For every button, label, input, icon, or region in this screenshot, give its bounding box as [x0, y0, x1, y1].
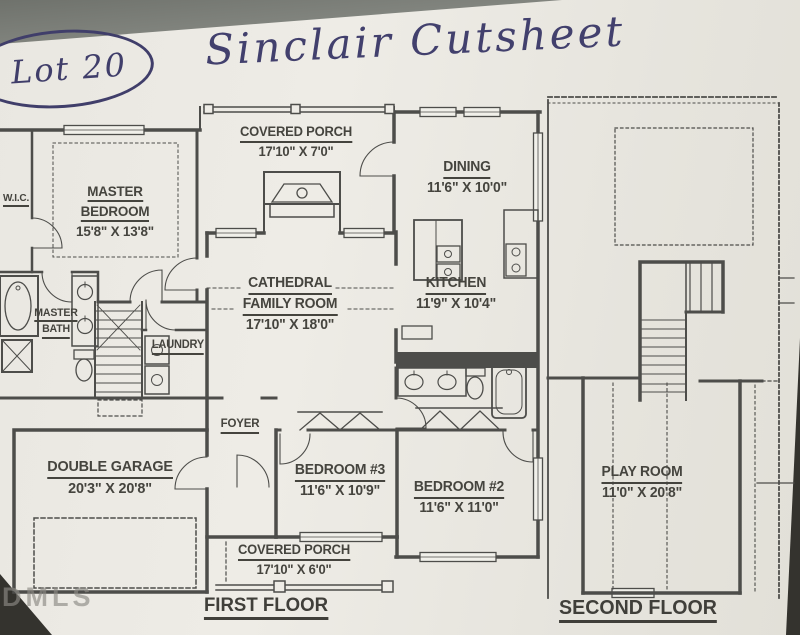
- watermark-text: DMLS: [2, 582, 95, 613]
- room-label-garage: DOUBLE GARAGE 20'3" X 20'8": [47, 457, 173, 498]
- room-dims: 11'6" X 11'0": [419, 499, 498, 518]
- room-name: COVERED PORCH: [238, 541, 350, 561]
- room-dims: 11'9" X 10'4": [416, 295, 496, 314]
- room-label-kitchen: KITCHEN 11'9" X 10'4": [416, 274, 496, 314]
- room-dims: 11'6" X 10'0": [427, 179, 507, 198]
- room-dims: 15'8" X 13'8": [76, 222, 154, 240]
- first-floor-title: FIRST FLOOR: [204, 595, 328, 617]
- room-name: FAMILY ROOM: [243, 295, 338, 316]
- room-dims: 11'6" X 10'9": [300, 482, 380, 501]
- first-floor-title-text: FIRST FLOOR: [204, 595, 328, 620]
- lot-number-text: Lot 20: [0, 46, 128, 93]
- room-name: W.I.C.: [3, 192, 29, 207]
- room-label-wic: W.I.C.: [3, 192, 29, 207]
- room-name: MASTER: [87, 182, 143, 202]
- room-dims: 20'3" X 20'8": [68, 479, 152, 499]
- second-floor-title: SECOND FLOOR: [559, 597, 717, 620]
- room-name: BEDROOM #3: [295, 461, 385, 482]
- room-dims: 11'0" X 20'8": [602, 484, 682, 503]
- room-name: CATHEDRAL: [248, 274, 332, 295]
- room-label-dining: DINING 11'6" X 10'0": [427, 158, 507, 198]
- room-name: COVERED PORCH: [240, 123, 352, 143]
- room-label-playroom: PLAY ROOM 11'0" X 20'8": [601, 463, 682, 503]
- floorplan-photo: W.I.C. MASTER BEDROOM 15'8" X 13'8" COVE…: [0, 0, 800, 635]
- room-name: MASTER: [34, 306, 77, 322]
- room-label-bedroom3: BEDROOM #3 11'6" X 10'9": [295, 461, 385, 501]
- room-name: PLAY ROOM: [601, 463, 682, 484]
- room-label-foyer: FOYER: [221, 416, 260, 434]
- room-name: LAUNDRY: [152, 338, 204, 355]
- room-name: BEDROOM: [81, 202, 150, 222]
- room-name: DINING: [443, 158, 491, 179]
- room-dims: 17'10" X 18'0": [246, 316, 334, 335]
- room-label-bedroom2: BEDROOM #2 11'6" X 11'0": [414, 478, 504, 518]
- room-label-laundry: LAUNDRY: [152, 338, 204, 355]
- room-name: FOYER: [221, 416, 260, 434]
- room-name: DOUBLE GARAGE: [47, 457, 173, 479]
- room-label-master-bedroom: MASTER BEDROOM 15'8" X 13'8": [76, 182, 154, 241]
- room-dims: 17'10" X 6'0": [256, 561, 331, 579]
- room-label-master-bath: MASTER BATH: [34, 306, 77, 339]
- room-label-family-room: CATHEDRAL FAMILY ROOM 17'10" X 18'0": [243, 274, 338, 335]
- room-name: KITCHEN: [426, 274, 487, 295]
- room-name: BATH: [42, 322, 70, 338]
- room-name: BEDROOM #2: [414, 478, 504, 499]
- room-dims: 17'10" X 7'0": [258, 143, 333, 161]
- second-floor-title-text: SECOND FLOOR: [559, 597, 717, 623]
- room-label-covered-porch-top: COVERED PORCH 17'10" X 7'0": [240, 123, 352, 160]
- room-label-covered-porch-bottom: COVERED PORCH 17'10" X 6'0": [238, 541, 350, 578]
